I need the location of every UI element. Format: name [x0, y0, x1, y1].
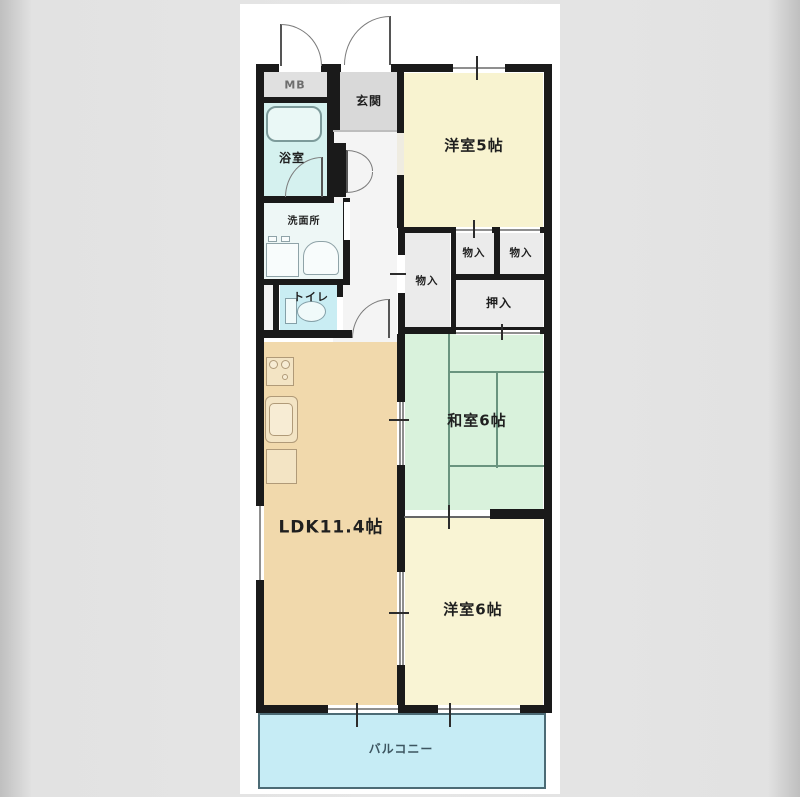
room-label-bathroom: 浴室: [279, 152, 305, 164]
room-label-japanese6: 和室6帖: [447, 414, 506, 429]
door-opening: [341, 64, 391, 72]
window-line: [259, 506, 261, 580]
wall-segment: [333, 64, 340, 132]
door-tick: [389, 612, 409, 614]
window-line: [453, 67, 505, 69]
window-tick: [449, 703, 451, 727]
wall-segment: [256, 64, 264, 713]
wall-segment: [397, 665, 405, 706]
stove-burner: [281, 360, 290, 369]
sliding-door-line: [402, 402, 404, 465]
door-opening: [397, 133, 404, 175]
wall-segment: [256, 196, 334, 203]
wall-segment: [256, 330, 352, 338]
kitchen-sink-basin: [269, 403, 293, 436]
door-tick: [473, 220, 475, 238]
wall-segment: [397, 175, 404, 228]
bathtub: [266, 106, 322, 142]
washing-machine: [266, 243, 299, 277]
room-label-storage-mid: 物入: [463, 248, 486, 259]
door-tick: [448, 505, 450, 529]
wall-segment: [397, 64, 404, 133]
door-opening: [337, 297, 343, 330]
wall-segment: [256, 97, 334, 103]
room-label-balcony: バルコニー: [369, 743, 434, 755]
room-label-toilet: トイレ: [293, 292, 329, 303]
room-label-mb: MB: [284, 80, 305, 91]
wall-segment: [397, 465, 405, 572]
sliding-door-line: [399, 402, 401, 465]
wall-segment: [451, 274, 544, 280]
toilet-bowl: [297, 301, 326, 322]
room-label-closet: 押入: [486, 297, 512, 309]
wall-segment: [273, 285, 279, 332]
entrance-step-line: [333, 130, 397, 132]
room-label-washroom: 洗面所: [288, 217, 321, 227]
window-tick: [356, 703, 358, 727]
washing-machine-top: [281, 236, 290, 242]
door-line: [500, 229, 540, 231]
stove-burner: [282, 374, 288, 380]
stove-burner: [269, 360, 278, 369]
door-tick: [390, 273, 406, 275]
wall-segment: [397, 334, 405, 402]
sliding-door-line: [402, 572, 404, 665]
wall-segment: [490, 509, 544, 519]
kitchen-counter: [266, 449, 297, 484]
wall-segment: [544, 64, 552, 713]
sliding-door-line: [399, 572, 401, 665]
wall-segment: [256, 279, 350, 285]
sliding-door-line: [404, 516, 490, 518]
room-label-genkan: 玄関: [356, 95, 382, 107]
door-tick: [501, 324, 503, 340]
wall-segment: [328, 143, 346, 197]
washing-machine-top: [268, 236, 277, 242]
tatami-line: [448, 465, 544, 467]
wall-segment: [494, 227, 500, 280]
wash-basin: [303, 241, 339, 275]
room-label-storage-tall: 物入: [416, 276, 439, 287]
sliding-door-line: [456, 332, 540, 334]
window-line: [328, 708, 398, 710]
door-opening: [344, 202, 350, 240]
room-label-storage-right: 物入: [510, 248, 533, 259]
room-label-western5: 洋室5帖: [444, 139, 503, 154]
window-tick: [476, 56, 478, 80]
door-tick: [389, 419, 409, 421]
pipe-space: [263, 285, 273, 330]
room-label-ldk: LDK11.4帖: [278, 520, 383, 537]
room-label-western6: 洋室6帖: [443, 603, 502, 618]
